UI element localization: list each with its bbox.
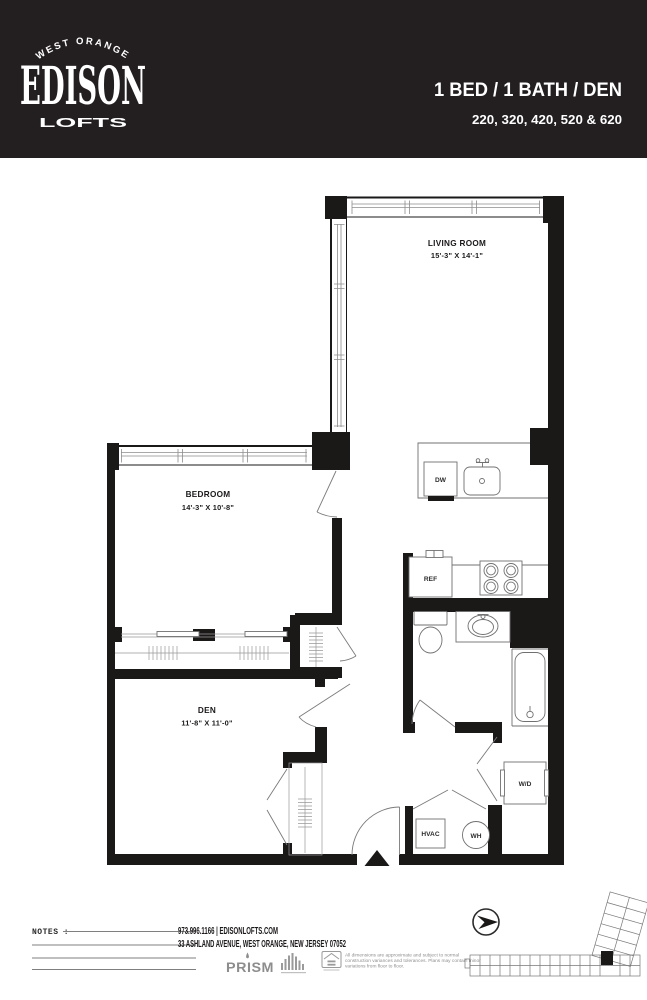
den-door	[299, 684, 350, 717]
brand-name: EDISON	[20, 56, 146, 117]
disclaimer-line-2: construction variances and tolerances. P…	[345, 958, 481, 964]
hvac-label: HVAC	[421, 831, 439, 838]
walls	[107, 196, 564, 865]
water-heater-label: WH	[471, 833, 482, 840]
vanity-sink	[456, 612, 510, 643]
brand-suffix: LOFTS	[39, 116, 127, 130]
bedroom-door	[317, 471, 336, 512]
laundry-closet: W/D	[501, 762, 549, 804]
notes-block: NOTES :	[32, 928, 196, 970]
door-swings	[267, 471, 497, 855]
prism-logo: PRISM	[226, 953, 274, 976]
equal-housing-icon	[322, 952, 341, 971]
kitchen-sink	[464, 459, 500, 495]
bathtub	[512, 649, 548, 726]
contact-line: 973.996.1166 | EDISONLOFTS.COM	[178, 926, 278, 937]
notes-label: NOTES :	[32, 928, 69, 937]
header-band: WEST ORANGE EDISON LOFTS 1 BED / 1 BATH …	[0, 0, 647, 158]
contact-block: 973.996.1166 | EDISONLOFTS.COM 33 ASHLAN…	[178, 926, 346, 950]
dishwasher-label: DW	[435, 477, 447, 484]
wall-edge-lines	[115, 198, 548, 466]
logos-block: PRISM All dimensions are	[226, 952, 481, 976]
prism-wordmark: PRISM	[226, 960, 274, 975]
living-room-windows	[334, 201, 540, 428]
washer-dryer-label: W/D	[519, 781, 532, 788]
living-room-name: LIVING ROOM	[428, 239, 486, 248]
stove	[480, 561, 522, 595]
den-name: DEN	[198, 706, 216, 715]
dishwasher: DW	[424, 462, 457, 501]
keyplan-unit-highlight	[601, 951, 613, 965]
skyline-logo	[281, 953, 306, 973]
entry-arrow	[365, 850, 390, 866]
bedroom-windows	[121, 449, 307, 463]
den-closet	[289, 763, 322, 855]
living-room-dims: 15'-3" X 14'-1"	[431, 251, 483, 260]
bathroom-door	[420, 700, 455, 727]
refrigerator-label: REF	[424, 576, 437, 583]
prism-drop-icon	[246, 953, 249, 959]
disclaimer: All dimensions are approximate and subje…	[345, 953, 481, 970]
floorplan-flyer: WEST ORANGE EDISON LOFTS 1 BED / 1 BATH …	[0, 0, 647, 1000]
disclaimer-line-1: All dimensions are approximate and subje…	[345, 953, 459, 959]
notes-lines	[32, 932, 196, 970]
refrigerator: REF	[409, 551, 452, 598]
compass-icon	[473, 909, 499, 935]
den-closet-doors	[267, 769, 287, 845]
address-line: 33 ASHLAND AVENUE, WEST ORANGE, NEW JERS…	[178, 939, 346, 950]
footer: NOTES : 973.996.1166 | EDISONLOFTS.COM 3…	[32, 892, 647, 976]
kitchen: DW REF	[409, 443, 548, 597]
disclaimer-line-3: variations from floor to floor.	[345, 964, 404, 970]
floor-plan: DW REF	[107, 196, 564, 866]
laundry-doors	[477, 737, 497, 801]
den-dims: 11'-8" X 11'-0"	[181, 719, 233, 728]
bedroom-closet-door	[337, 627, 356, 656]
bedroom-name: BEDROOM	[186, 490, 231, 499]
mechanical-closet: HVAC WH	[416, 819, 490, 849]
hall-closet	[309, 627, 323, 667]
unit-type-title: 1 BED / 1 BATH / DEN	[434, 80, 622, 101]
bedroom-dims: 14'-3" X 10'-8"	[182, 503, 234, 512]
unit-numbers: 220, 320, 420, 520 & 620	[472, 112, 622, 127]
toilet	[414, 612, 447, 654]
hvac-closet-doors	[413, 790, 486, 809]
